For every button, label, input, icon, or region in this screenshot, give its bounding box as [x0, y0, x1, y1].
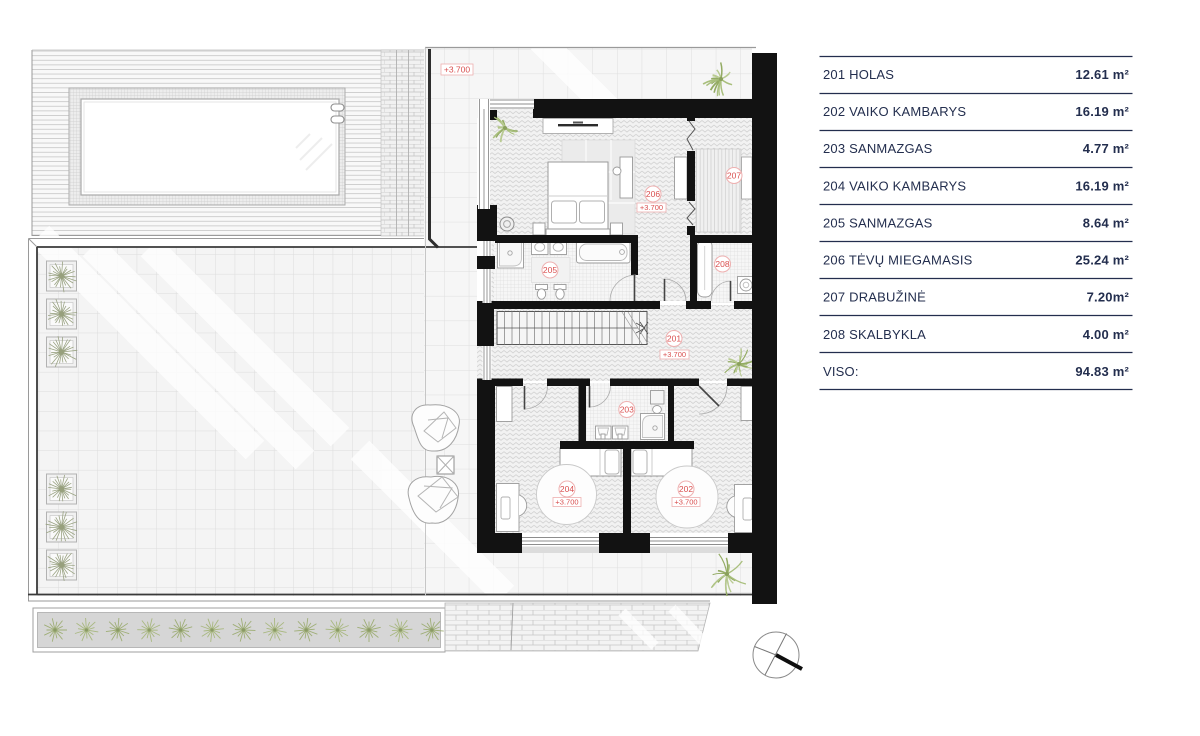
svg-text:+3.700: +3.700: [640, 203, 663, 212]
svg-text:204: 204: [560, 484, 574, 494]
svg-text:202: 202: [679, 484, 693, 494]
svg-text:207: 207: [727, 171, 741, 181]
svg-text:16.19 m²: 16.19 m²: [1075, 178, 1129, 193]
svg-text:94.83 m²: 94.83 m²: [1075, 364, 1129, 379]
svg-text:203 SANMAZGAS: 203 SANMAZGAS: [823, 141, 933, 156]
svg-text:+3.700: +3.700: [663, 350, 686, 359]
svg-text:205: 205: [543, 265, 557, 275]
svg-text:205 SANMAZGAS: 205 SANMAZGAS: [823, 216, 933, 231]
svg-text:208 SKALBYKLA: 208 SKALBYKLA: [823, 327, 926, 342]
svg-text:+3.700: +3.700: [674, 498, 697, 507]
svg-text:206 TĖVŲ MIEGAMASIS: 206 TĖVŲ MIEGAMASIS: [823, 253, 973, 268]
svg-text:16.19 m²: 16.19 m²: [1075, 104, 1129, 119]
svg-text:7.20m²: 7.20m²: [1087, 290, 1130, 305]
svg-text:201 HOLAS: 201 HOLAS: [823, 67, 894, 82]
svg-text:208: 208: [715, 259, 729, 269]
svg-text:4.77 m²: 4.77 m²: [1083, 141, 1130, 156]
svg-text:+3.700: +3.700: [444, 65, 471, 75]
svg-text:201: 201: [667, 334, 681, 344]
svg-text:203: 203: [620, 405, 634, 415]
svg-text:202 VAIKO KAMBARYS: 202 VAIKO KAMBARYS: [823, 104, 966, 119]
svg-text:VISO:: VISO:: [823, 364, 859, 379]
svg-text:8.64 m²: 8.64 m²: [1083, 216, 1130, 231]
svg-text:4.00 m²: 4.00 m²: [1083, 327, 1130, 342]
svg-text:207 DRABUŽINĖ: 207 DRABUŽINĖ: [823, 290, 926, 305]
svg-text:206: 206: [646, 189, 660, 199]
svg-text:25.24 m²: 25.24 m²: [1075, 253, 1129, 268]
svg-text:204 VAIKO KAMBARYS: 204 VAIKO KAMBARYS: [823, 178, 966, 193]
svg-text:12.61 m²: 12.61 m²: [1075, 67, 1129, 82]
svg-text:+3.700: +3.700: [555, 498, 578, 507]
